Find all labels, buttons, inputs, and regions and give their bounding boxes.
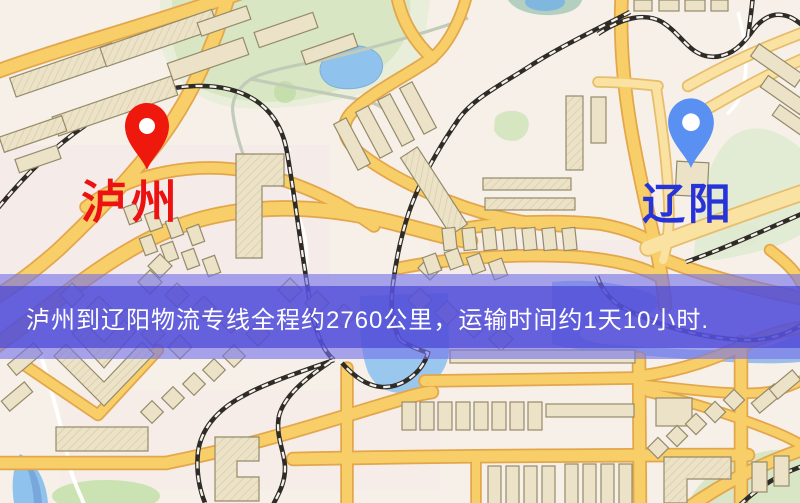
building-block [542, 466, 555, 503]
building-block [420, 402, 434, 430]
building-block [546, 404, 634, 417]
building-block [524, 466, 537, 503]
destination-label: 辽阳 [642, 181, 734, 229]
building-block [522, 227, 537, 250]
building-block [456, 402, 470, 430]
map-road [425, 378, 640, 381]
building-block [565, 464, 578, 503]
building-block [583, 464, 596, 503]
building-block [634, 0, 652, 11]
building-block [482, 227, 497, 250]
building-block [492, 402, 506, 430]
map-image: 泸州 辽阳 [0, 0, 800, 503]
route-banner: 泸州到辽阳物流专线全程约2760公里，运输时间约1天10小时. [0, 274, 800, 359]
building-block [56, 427, 148, 451]
building-block [591, 97, 606, 143]
building-block [752, 462, 767, 492]
building-block [656, 398, 692, 426]
building-block [601, 464, 614, 503]
building-block [685, 0, 705, 11]
building-block [442, 227, 457, 250]
building-block [438, 402, 452, 430]
building-block [619, 464, 632, 503]
building-block [402, 402, 416, 430]
map-road [639, 358, 640, 503]
building-block [488, 466, 501, 503]
building-block [502, 227, 517, 250]
building-block [510, 402, 524, 430]
route-description: 泸州到辽阳物流专线全程约2760公里，运输时间约1天10小时. [0, 300, 709, 335]
building-block [485, 198, 575, 210]
building-block [774, 456, 789, 486]
building-block [542, 227, 557, 250]
building-block [474, 402, 488, 430]
building-block [562, 227, 577, 250]
map-canvas[interactable]: 泸州 辽阳 泸州到辽阳物流专线全程约2760公里，运输时间约1天10小时. [0, 0, 800, 503]
building-block [528, 402, 542, 430]
route-banner-strip: 泸州到辽阳物流专线全程约2760公里，运输时间约1天10小时. [0, 286, 800, 348]
building-block [483, 178, 571, 190]
building-block [659, 0, 679, 11]
building-block [462, 227, 477, 250]
building-block [506, 466, 519, 503]
origin-label: 泸州 [81, 176, 181, 228]
building-block [566, 96, 583, 170]
map-road [598, 82, 658, 86]
building-block [711, 0, 728, 11]
